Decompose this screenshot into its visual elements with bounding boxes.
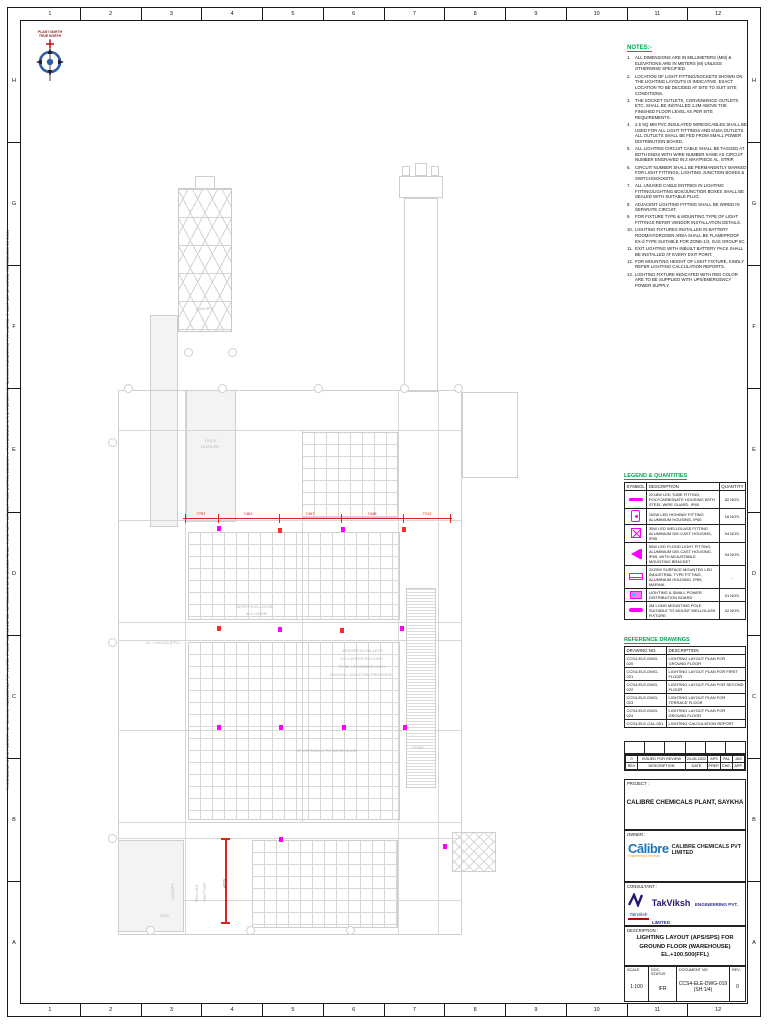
revision-header-prep: PREP. xyxy=(708,763,721,770)
legend-symbol-cell xyxy=(625,602,647,620)
revision-header-description: DESCRIPTION xyxy=(638,763,686,770)
grid-bubble xyxy=(400,384,409,393)
reference-title: REFERENCE DRAWINGS xyxy=(624,637,690,644)
legend-description: 30W LED WELLGLASS FITTING ALUMINIUM DIE-… xyxy=(647,525,719,543)
dimension-value: 7407 xyxy=(306,511,315,516)
drawing-sheet: 123456789101112 123456789101112 HGFEDCBA… xyxy=(0,0,768,1024)
legend-title: LEGEND & QUANTITIES xyxy=(624,473,687,480)
light-fixture-marker xyxy=(217,626,221,631)
project-box: PROJECT : CALIBRE CHEMICALS PLANT, SAYKH… xyxy=(624,779,746,830)
revision-header-date: DATE xyxy=(686,763,708,770)
grid-bubble xyxy=(228,348,237,357)
legend-section: LEGEND & QUANTITIES SYMBOL DESCRIPTION Q… xyxy=(624,464,746,620)
consultant-name: TakViksh xyxy=(652,898,691,908)
grid-bubble xyxy=(246,926,255,935)
legend-quantity: - xyxy=(719,566,745,589)
legend-row: 100W LED HIGHBAY FITTING ALUMINIUM HOUSI… xyxy=(625,509,746,525)
wall-line xyxy=(118,430,462,431)
legend-description: 100W LED HIGHBAY FITTING ALUMINIUM HOUSI… xyxy=(647,509,719,525)
reference-row: CCS4-ELE-DWG-024LIGHTING LAYOUT PLAN FOR… xyxy=(625,707,746,720)
legend-row: 50W LED FLOOD LIGHT FITTING, ALUMINIUM D… xyxy=(625,543,746,566)
plan-annotation: TO BE UPGRADED WITH xyxy=(338,664,385,669)
doc-status-label: DOC. STATUS xyxy=(649,967,676,977)
dimension-tick xyxy=(403,514,404,523)
dimension-tick xyxy=(450,514,451,523)
legend-header-quantity: QUANTITY xyxy=(719,483,745,491)
legend-symbol-cell xyxy=(625,589,647,602)
wellglass-fixture-icon xyxy=(631,528,641,538)
grid-bubble xyxy=(184,348,193,357)
takviksh-logo-script: TakViksh xyxy=(628,912,649,917)
legend-quantity: 02 NOS. xyxy=(719,602,745,620)
plan-annotation: 1100 xyxy=(160,913,169,918)
light-fixture-marker xyxy=(217,725,221,730)
description-line2: GROUND FLOOR (WAREHOUSE) EL.+100.500(FFL… xyxy=(625,943,745,960)
grid-bubble xyxy=(218,384,227,393)
dimension-tick xyxy=(218,514,219,523)
takviksh-logo-bar xyxy=(628,918,649,920)
legend-header-description: DESCRIPTION xyxy=(647,483,719,491)
revision-date: 24-06-2022 xyxy=(686,756,708,763)
linear-fixture-icon xyxy=(629,498,643,501)
revision-prep: APS xyxy=(708,756,721,763)
reference-description: LIGHTING LAYOUT PLAN FOR GROUND FLOOR xyxy=(667,707,746,720)
grid-bubble xyxy=(346,926,355,935)
reference-drawing-no: CCS4-ELE-DWG-021 xyxy=(625,668,667,681)
reference-description: LIGHTING LAYOUT PLAN FOR TERRACE FLOOR xyxy=(667,694,746,707)
light-fixture-marker xyxy=(342,725,346,730)
plan-annotation: APS/SPS IN-LOOSE xyxy=(236,604,273,609)
project-name: CALIBRE CHEMICALS PLANT, SAYKHA xyxy=(625,799,745,806)
grid-bubble xyxy=(146,926,155,935)
dimension-cap xyxy=(221,922,230,924)
reference-row: CCS4-ELE-DWG-023LIGHTING LAYOUT PLAN FOR… xyxy=(625,694,746,707)
grid-bubble xyxy=(124,384,133,393)
revision-header-che: CHE. xyxy=(720,763,732,770)
doc-status-value: IFR xyxy=(649,977,676,1001)
wall-line xyxy=(438,390,439,935)
plan-annotation: CANOPY xyxy=(196,306,213,311)
wall-line xyxy=(118,838,462,839)
document-no-value: CCS4-ELE-DWG-019 (SH:1/4) xyxy=(677,973,729,1001)
description-box: DESCRIPTION : LIGHTING LAYOUT (APS/SPS) … xyxy=(624,926,746,966)
legend-symbol-cell xyxy=(625,491,647,509)
dimension-value: 7757 xyxy=(197,511,206,516)
horizontal-dimension-line xyxy=(183,518,452,519)
chimney-crown-right xyxy=(431,166,439,176)
chimney-body xyxy=(404,198,438,392)
description-label: DESCRIPTION : xyxy=(625,927,745,934)
legend-description: 2X20W SURFACE MOUNTED LED INDUSTRIAL TYP… xyxy=(647,566,719,589)
chimney-crown-mid xyxy=(415,163,427,176)
legend-symbol-cell xyxy=(625,509,647,525)
rack-dense-strip xyxy=(406,588,436,788)
calibre-logo: Cālibre Engineering Chemistry xyxy=(628,842,669,858)
grid-bubble xyxy=(108,438,117,447)
light-fixture-marker xyxy=(278,528,282,533)
plan-annotation: RACKING SOLUTION PROVIDER xyxy=(330,672,392,677)
rack-grid xyxy=(252,840,398,928)
owner-label: OWNER : xyxy=(625,831,745,838)
highbay-fixture-icon xyxy=(631,510,640,522)
takviksh-logo: TakViksh xyxy=(628,893,649,920)
rack-grid xyxy=(188,532,400,620)
reference-drawing-no: CCS4-ELE-DWG-023 xyxy=(625,694,667,707)
plan-annotation: APS/SPS BULK P5 WAREHOUSE xyxy=(296,748,358,753)
revision-che: PAL xyxy=(720,756,732,763)
reference-drawings-section: REFERENCE DRAWINGS DRAWING NO. DESCRIPTI… xyxy=(624,628,746,728)
revision-table: 0 ISSUED FOR REVIEW 24-06-2022 APS PAL J… xyxy=(624,754,746,771)
plan-annotation: DOCK xyxy=(205,438,217,443)
revision-empty-rows xyxy=(624,741,746,754)
legend-table: SYMBOL DESCRIPTION QUANTITY 2X18W LED TU… xyxy=(624,482,746,620)
consultant-label: CONSULTANT : xyxy=(625,883,745,890)
legend-symbol-cell xyxy=(625,566,647,589)
plan-annotation: SHUTTER xyxy=(202,883,207,902)
wall-line xyxy=(118,520,462,521)
plan-annotation: 4+4 LAYER xyxy=(246,611,267,616)
stair-block xyxy=(452,832,496,872)
revision-app: JAS xyxy=(732,756,744,763)
dimension-value: 7448 xyxy=(368,511,377,516)
light-fixture-marker xyxy=(341,527,345,532)
right-canopy-block xyxy=(462,392,518,478)
revision-header-app: APP. xyxy=(732,763,744,770)
legend-row: 2X18W LED TUBE FITTING, POLYCARBONATE HO… xyxy=(625,491,746,509)
light-fixture-marker xyxy=(279,725,283,730)
dimension-cap xyxy=(221,838,230,840)
legend-description: LIGHTING & SMALL POWER DISTRIBUTION BOAR… xyxy=(647,589,719,602)
legend-description: 50W LED FLOOD LIGHT FITTING, ALUMINIUM D… xyxy=(647,543,719,566)
light-fixture-marker xyxy=(403,725,407,730)
title-footer: SCALE 1:100 DOC. STATUS IFR DOCUMENT NO … xyxy=(624,966,746,1002)
takviksh-logo-icon xyxy=(628,893,648,907)
plan-annotation: ROLLING xyxy=(194,884,199,902)
consultant-box: CONSULTANT : TakViksh TakViksh ENGINEERI… xyxy=(624,882,746,926)
reference-drawing-no: CCS4-ELE-DWG-024 xyxy=(625,707,667,720)
legend-row: 2M LONG MOUNTING POLE SUITABLE TO MOUNT … xyxy=(625,602,746,620)
distribution-board-icon xyxy=(630,591,642,599)
revision-description: ISSUED FOR REVIEW xyxy=(638,756,686,763)
plan-annotation: PUMP xyxy=(412,745,424,750)
legend-description: 2X18W LED TUBE FITTING, POLYCARBONATE HO… xyxy=(647,491,719,509)
reference-description: LIGHTING LAYOUT PLAN FOR GROUND FLOOR xyxy=(667,655,746,668)
legend-quantity: 04 NOS. xyxy=(719,525,745,543)
plan-annotation: CANOPY xyxy=(170,883,175,900)
reference-row: CCS4-ELE-DWG-020LIGHTING LAYOUT PLAN FOR… xyxy=(625,655,746,668)
reference-header-description: DESCRIPTION xyxy=(667,647,746,655)
light-fixture-marker xyxy=(279,837,283,842)
surface-led-fixture-icon xyxy=(629,573,643,580)
scale-value: 1:100 xyxy=(625,973,648,1001)
reference-drawing-no: CCS4-ELE-DWG-020 xyxy=(625,655,667,668)
light-fixture-marker xyxy=(402,527,406,532)
dimension-value: 7463 xyxy=(244,511,253,516)
legend-header-symbol: SYMBOL xyxy=(625,483,647,491)
project-label: PROJECT : xyxy=(625,780,745,787)
reference-row: CCS4-ELE-CAL-001LIGHTING CALCULATION REP… xyxy=(625,720,746,728)
legend-row: LIGHTING & SMALL POWER DISTRIBUTION BOAR… xyxy=(625,589,746,602)
dimension-value: 7212 xyxy=(423,511,432,516)
floodlight-fixture-icon xyxy=(631,549,640,559)
legend-description: 2M LONG MOUNTING POLE SUITABLE TO MOUNT … xyxy=(647,602,719,620)
revision-header-rev: REV xyxy=(626,763,638,770)
owner-box: OWNER : Cālibre Engineering Chemistry CA… xyxy=(624,830,746,882)
legend-row: 30W LED WELLGLASS FITTING ALUMINIUM DIE-… xyxy=(625,525,746,543)
legend-quantity: 01 NOS. xyxy=(719,589,745,602)
dimension-tick xyxy=(341,514,342,523)
plan-annotation: LEVELER xyxy=(201,444,219,449)
light-fixture-marker xyxy=(400,626,404,631)
grid-bubble xyxy=(454,384,463,393)
light-fixture-marker xyxy=(217,526,221,531)
reference-header-no: DRAWING NO. xyxy=(625,647,667,655)
owner-name: CALIBRE CHEMICALS PVT LIMITED xyxy=(672,844,743,856)
rack-grid xyxy=(302,432,398,518)
wall-line xyxy=(118,822,462,823)
truss-tower-cap xyxy=(195,176,215,189)
revision-rev: 0 xyxy=(626,756,638,763)
chimney-collar xyxy=(399,176,443,198)
reference-row: CCS4-ELE-DWG-022LIGHTING LAYOUT PLAN FOR… xyxy=(625,681,746,694)
legend-symbol-cell xyxy=(625,543,647,566)
dimension-tick xyxy=(185,514,186,523)
light-fixture-marker xyxy=(340,628,344,633)
legend-quantity: 04 NOS. xyxy=(719,543,745,566)
mounting-pole-icon xyxy=(629,608,643,612)
light-fixture-marker xyxy=(278,627,282,632)
description-line1: LIGHTING LAYOUT (APS/SPS) FOR xyxy=(625,934,745,943)
plan-annotation: APS/SPS IN PALLETS xyxy=(342,648,383,653)
reference-description: LIGHTING LAYOUT PLAN FOR FIRST FLOOR xyxy=(667,668,746,681)
reference-table: DRAWING NO. DESCRIPTION CCS4-ELE-DWG-020… xyxy=(624,646,746,728)
light-fixture-marker xyxy=(443,844,447,849)
reference-drawing-no: CCS4-ELE-DWG-022 xyxy=(625,681,667,694)
rev-value: 0 xyxy=(730,973,745,1001)
legend-row: 2X20W SURFACE MOUNTED LED INDUSTRIAL TYP… xyxy=(625,566,746,589)
reference-description: LIGHTING CALCULATION REPORT xyxy=(667,720,746,728)
legend-symbol-cell xyxy=(625,525,647,543)
grid-bubble xyxy=(108,834,117,843)
legend-quantity: 82 NOS. xyxy=(719,491,745,509)
dimension-value: 4722 xyxy=(222,879,227,888)
dimension-tick xyxy=(279,514,280,523)
reference-description: LIGHTING LAYOUT PLAN FOR SECOND FLOOR xyxy=(667,681,746,694)
wall-line xyxy=(185,390,186,935)
chimney-crown-left xyxy=(402,166,410,176)
legend-quantity: 16 NOS. xyxy=(719,509,745,525)
grid-bubble xyxy=(314,384,323,393)
plan-annotation: 4+4 LAYERS RACKING xyxy=(340,656,383,661)
plan-annotation: EL.+100.500 (FFL) xyxy=(146,640,180,645)
reference-drawing-no: CCS4-ELE-CAL-001 xyxy=(625,720,667,728)
grid-bubble xyxy=(108,638,117,647)
reference-row: CCS4-ELE-DWG-021LIGHTING LAYOUT PLAN FOR… xyxy=(625,668,746,681)
